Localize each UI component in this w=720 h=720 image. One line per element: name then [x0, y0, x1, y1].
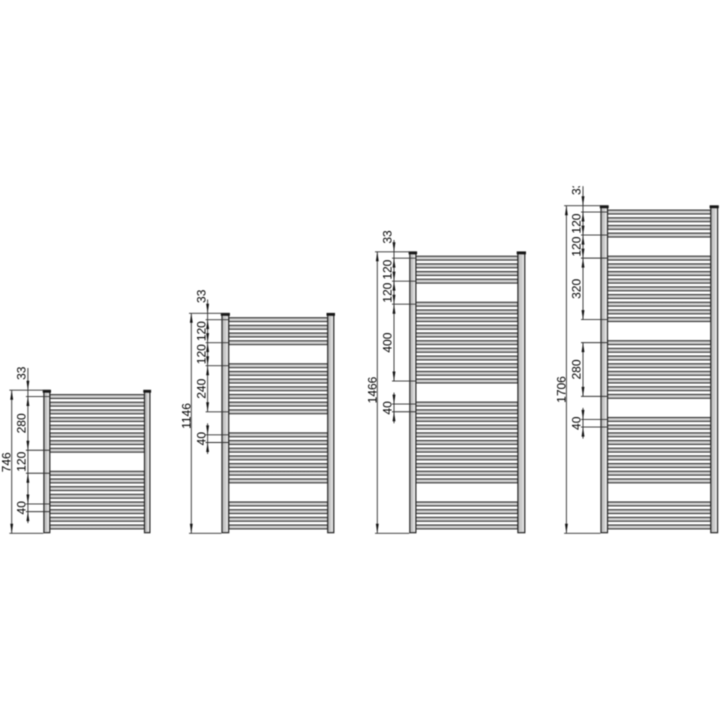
svg-text:120: 120 — [570, 236, 584, 256]
svg-text:746: 746 — [0, 452, 14, 472]
svg-text:120: 120 — [194, 344, 208, 364]
svg-text:400: 400 — [381, 332, 395, 352]
svg-text:1146: 1146 — [179, 403, 193, 429]
svg-text:40: 40 — [194, 432, 208, 446]
svg-text:120: 120 — [381, 259, 395, 279]
svg-text:33: 33 — [15, 366, 29, 380]
svg-text:33: 33 — [381, 230, 395, 244]
svg-text:40: 40 — [15, 501, 29, 515]
svg-text:120: 120 — [570, 213, 584, 233]
svg-text:280: 280 — [570, 359, 584, 379]
svg-text:1706: 1706 — [554, 376, 568, 403]
svg-text:320: 320 — [570, 279, 584, 299]
svg-text:120: 120 — [15, 451, 29, 471]
svg-text:1466: 1466 — [365, 376, 379, 403]
svg-text:33: 33 — [194, 289, 208, 303]
svg-text:40: 40 — [570, 416, 584, 430]
svg-text:40: 40 — [381, 401, 395, 415]
svg-text:120: 120 — [381, 282, 395, 302]
svg-text:120: 120 — [194, 321, 208, 341]
svg-text:280: 280 — [15, 413, 29, 433]
svg-text:240: 240 — [194, 378, 208, 398]
